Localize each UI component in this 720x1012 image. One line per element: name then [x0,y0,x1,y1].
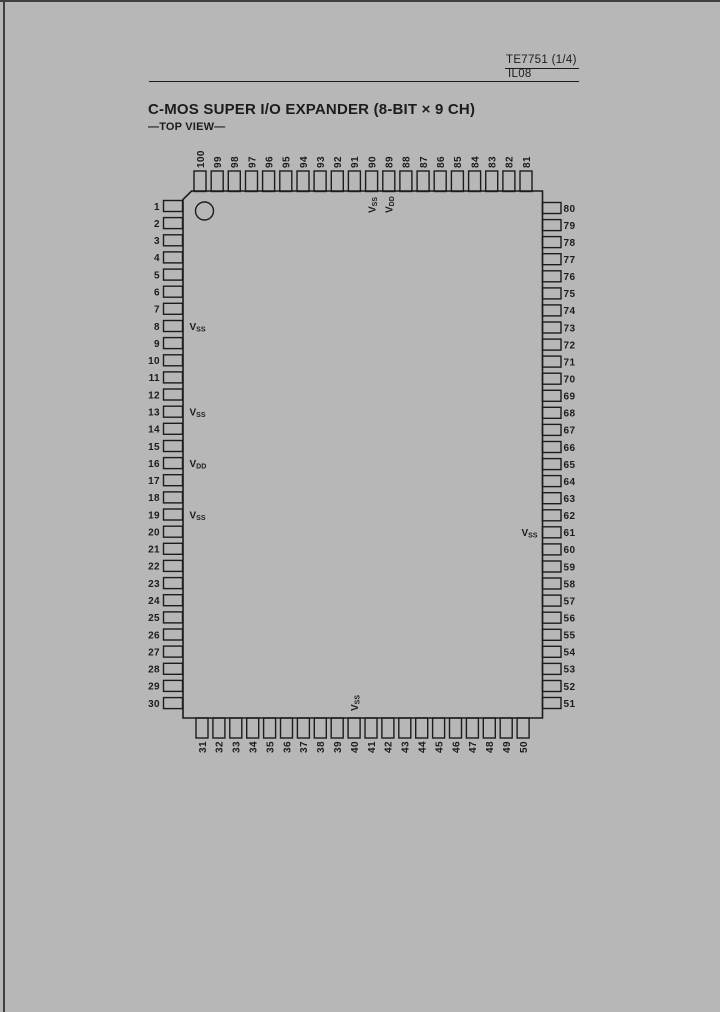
pin-19-number: 19 [148,510,160,521]
power-label-pin-16: VDD [190,459,207,471]
pin-32-number: 32 [215,741,226,753]
pin-45-number: 45 [434,741,445,753]
pin-85-number: 85 [453,156,464,168]
pin-72 [543,339,562,350]
pin-20-number: 20 [148,528,160,539]
pin-30 [164,698,183,709]
pin-25-number: 25 [148,613,160,624]
pinout-diagram: 1009998979695949392919089888786858483828… [0,0,720,1012]
pin-44 [416,718,428,738]
pin-95-number: 95 [282,156,293,168]
pin-27 [164,646,183,657]
pin-9-number: 9 [154,339,160,350]
pin-44-number: 44 [418,741,429,753]
pin-73-number: 73 [564,323,576,334]
pin-26-number: 26 [148,630,160,641]
pin-27-number: 27 [148,647,160,658]
pin-3 [164,235,183,246]
pin-11-number: 11 [149,373,160,384]
pin-51 [543,698,562,709]
pin-8-number: 8 [154,322,160,333]
pin-64-number: 64 [564,477,576,488]
pin-40-number: 40 [350,741,361,753]
pin-46 [450,718,462,738]
pin-49-number: 49 [502,741,513,753]
pin-17 [164,475,183,486]
pin-80-number: 80 [564,204,576,215]
pin-13 [164,406,183,417]
pin-51-number: 51 [564,699,576,710]
pin-6-number: 6 [154,288,160,299]
pin-9 [164,338,183,349]
pin-42 [382,718,394,738]
chip-body-outline [183,191,543,718]
pin-92 [331,171,343,192]
pin-58 [543,578,562,589]
pin-23-number: 23 [148,579,160,590]
pin-49 [500,718,512,738]
pin-85 [451,171,463,192]
pin-47 [466,718,478,738]
pin-76 [543,271,562,282]
pin-98 [228,171,240,192]
pin-77 [543,254,562,265]
pin-16 [164,458,183,469]
pin-96-number: 96 [264,156,275,168]
pin-6 [164,286,183,297]
pin-38 [314,718,326,738]
pin-89 [383,171,395,192]
pin-92-number: 92 [333,156,344,168]
pin-35 [264,718,276,738]
power-label-pin-90: VSS [367,197,379,213]
pin-8 [164,321,183,332]
pin-54 [543,646,562,657]
pin-64 [543,476,562,487]
pin-50-number: 50 [519,741,530,753]
pin-68 [543,407,562,418]
pin-70 [543,373,562,384]
pin-48-number: 48 [485,741,496,753]
pin-5 [164,269,183,280]
pin-90 [366,171,378,192]
pin-46-number: 46 [451,741,462,753]
pin-28-number: 28 [148,665,160,676]
pin-61-number: 61 [564,528,576,539]
power-label-pin-19: VSS [190,510,206,522]
pin-42-number: 42 [384,741,395,753]
power-label-pin-13: VSS [190,408,206,420]
pin-57 [543,595,562,606]
pin-81-number: 81 [522,156,533,168]
pin-75 [543,288,562,299]
pin-31-number: 31 [198,741,209,753]
pin-98-number: 98 [230,156,241,168]
pin-73 [543,322,562,333]
pin-39-number: 39 [333,741,344,753]
pin-23 [164,578,183,589]
pin-84 [469,171,481,192]
pin-18 [164,492,183,503]
pin-5-number: 5 [154,270,160,281]
pin-58-number: 58 [564,579,576,590]
power-label-pin-40: VSS [350,695,362,711]
pin-93-number: 93 [316,156,327,168]
pin-56 [543,612,562,623]
pin-82-number: 82 [505,156,516,168]
pin-90-number: 90 [367,156,378,168]
pin-67-number: 67 [564,426,576,437]
pin-76-number: 76 [564,272,576,283]
pin-21 [164,543,183,554]
pin-71-number: 71 [564,357,576,368]
pin-26 [164,629,183,640]
pin-83-number: 83 [488,156,499,168]
pin-72-number: 72 [564,340,576,351]
pin-81 [520,171,532,192]
pin-95 [280,171,292,192]
pin-74 [543,305,562,316]
pin-97-number: 97 [247,156,258,168]
pin-35-number: 35 [265,741,276,753]
pin-99-number: 99 [213,156,224,168]
pin-59-number: 59 [564,562,576,573]
pin-84-number: 84 [470,156,481,168]
pin-77-number: 77 [564,255,576,266]
pin-60 [543,544,562,555]
pin-45 [433,718,445,738]
pin-55 [543,629,562,640]
pin-61 [543,527,562,538]
pin-63-number: 63 [564,494,576,505]
pin-41 [365,718,377,738]
pin-78 [543,237,562,248]
pin-62 [543,510,562,521]
pin-62-number: 62 [564,511,576,522]
pin-74-number: 74 [564,306,576,317]
pin-69-number: 69 [564,392,576,403]
pin-1-number: 1 [154,202,160,213]
pin-38-number: 38 [316,741,327,753]
pin-59 [543,561,562,572]
pin-41-number: 41 [367,741,378,753]
pin1-indicator-icon [196,202,214,220]
pin-88-number: 88 [402,156,413,168]
power-label-pin-61: VSS [521,528,537,540]
pin-94 [297,171,309,192]
pin-20 [164,526,183,537]
power-label-pin-89: VDD [385,196,397,213]
pin-10 [164,355,183,366]
pin-18-number: 18 [148,493,160,504]
pin-79 [543,220,562,231]
pin-97 [246,171,258,192]
pin-34 [247,718,259,738]
pin-37-number: 37 [299,741,310,753]
pin-7-number: 7 [154,305,160,316]
pin-71 [543,356,562,367]
pin-17-number: 17 [148,476,160,487]
pin-91-number: 91 [350,156,361,168]
pin-11 [164,372,183,383]
pin-67 [543,424,562,435]
pin-12-number: 12 [148,390,160,401]
pin-83 [486,171,498,192]
pin-19 [164,509,183,520]
pin-65-number: 65 [564,460,576,471]
pin-91 [348,171,360,192]
pin-14-number: 14 [148,425,160,436]
pin-55-number: 55 [564,631,576,642]
pin-56-number: 56 [564,614,576,625]
pin-33-number: 33 [232,741,243,753]
pin-22 [164,560,183,571]
pin-100 [194,171,206,192]
pin-70-number: 70 [564,375,576,386]
pin-87 [417,171,429,192]
pin-78-number: 78 [564,238,576,249]
pin-54-number: 54 [564,648,576,659]
pin-24-number: 24 [148,596,160,607]
pin-63 [543,493,562,504]
pin-75-number: 75 [564,289,576,300]
pin-53 [543,663,562,674]
pin-66 [543,442,562,453]
pin-4-number: 4 [154,253,160,264]
pin-93 [314,171,326,192]
pin-3-number: 3 [154,236,160,247]
pin-31 [196,718,208,738]
pin-86-number: 86 [436,156,447,168]
pin-53-number: 53 [564,665,576,676]
pin-99 [211,171,223,192]
pin-80 [543,203,562,214]
pin-89-number: 89 [385,156,396,168]
power-label-pin-8: VSS [190,322,206,334]
pin-87-number: 87 [419,156,430,168]
pin-21-number: 21 [148,545,160,556]
datasheet-page: TE7751 (1/4) IL08 C-MOS SUPER I/O EXPAND… [0,0,720,1012]
pin-68-number: 68 [564,409,576,420]
pin-57-number: 57 [564,596,576,607]
pin-34-number: 34 [249,741,260,753]
pin-86 [434,171,446,192]
pin-60-number: 60 [564,545,576,556]
pin-50 [517,718,529,738]
pin-36 [281,718,293,738]
pin-12 [164,389,183,400]
pin-65 [543,459,562,470]
pin-32 [213,718,225,738]
pin-47-number: 47 [468,741,479,753]
pin-16-number: 16 [148,459,160,470]
pin-82 [503,171,515,192]
pin-15-number: 15 [148,442,160,453]
pin-48 [483,718,495,738]
pin-10-number: 10 [148,356,160,367]
pin-52 [543,681,562,692]
pin-30-number: 30 [148,699,160,710]
pin-40 [348,718,360,738]
pin-79-number: 79 [564,221,576,232]
pin-43 [399,718,411,738]
pin-15 [164,441,183,452]
pin-100-number: 100 [196,150,207,168]
pin-66-number: 66 [564,443,576,454]
pin-52-number: 52 [564,682,576,693]
pin-37 [297,718,309,738]
pin-22-number: 22 [148,562,160,573]
pin-28 [164,663,183,674]
pin-36-number: 36 [282,741,293,753]
pin-14 [164,423,183,434]
pin-96 [263,171,275,192]
pin-4 [164,252,183,263]
pin-2-number: 2 [154,219,160,230]
pin-1 [164,201,183,212]
pin-69 [543,390,562,401]
pin-33 [230,718,242,738]
pin-88 [400,171,412,192]
pin-29-number: 29 [148,682,160,693]
pin-13-number: 13 [148,408,160,419]
pin-29 [164,680,183,691]
pin-43-number: 43 [401,741,412,753]
pin-39 [331,718,343,738]
pin-25 [164,612,183,623]
pin-94-number: 94 [299,156,310,168]
pin-7 [164,303,183,314]
pin-24 [164,595,183,606]
pin-2 [164,218,183,229]
